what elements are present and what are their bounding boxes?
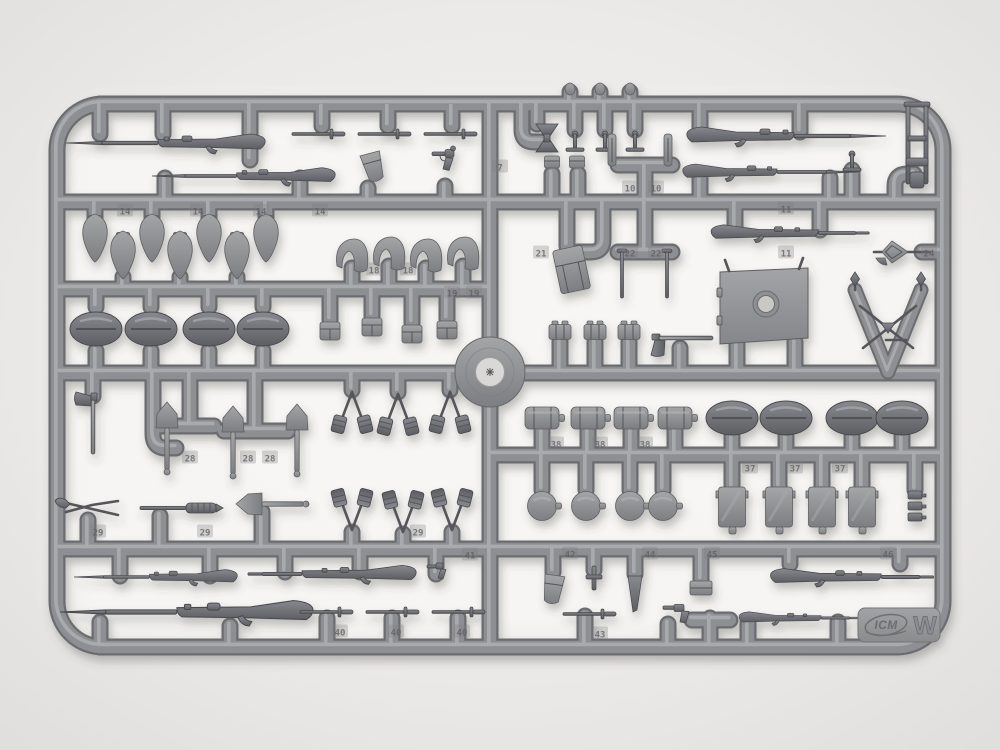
mold-number: 22: [651, 250, 662, 260]
mold-number: 19: [447, 290, 458, 300]
mess-tin-part: [525, 407, 565, 429]
mold-number: 37: [745, 465, 756, 475]
mold-number: 29: [413, 529, 424, 539]
mold-number: 10: [651, 185, 662, 195]
mold-number: 11: [781, 206, 792, 216]
mold-number: 24: [924, 250, 935, 260]
mold-number: 46: [883, 551, 894, 561]
mold-number: 40: [391, 629, 402, 639]
ammo-pouch-part: [437, 321, 457, 339]
mold-number: 41: [465, 552, 476, 562]
mold-number: 40: [335, 629, 346, 639]
mold-number: 38: [640, 441, 651, 451]
bread-bag-part: [716, 487, 748, 534]
mold-number: 28: [243, 455, 254, 465]
mold-number: 14: [315, 208, 326, 218]
icm-logo-text: ICM: [874, 618, 898, 632]
helmet-part: [706, 401, 758, 435]
ammo-pouch-part: [570, 156, 585, 168]
mold-number: 29: [93, 529, 104, 539]
ammo-pouch-part: [362, 318, 382, 336]
bread-bag-part: [763, 487, 795, 534]
sling-part: [608, 134, 616, 166]
ammo-pouch-part: [545, 156, 560, 168]
helmet-part: [237, 312, 289, 346]
mold-number: 18: [369, 267, 380, 277]
helmet-part: [125, 312, 177, 346]
mold-number: 42: [565, 551, 576, 561]
helmet-part: [876, 401, 928, 435]
helmet-part: [70, 312, 122, 346]
mold-number: 28: [265, 455, 276, 465]
mold-number: 38: [595, 441, 606, 451]
mold-number: 7: [497, 164, 502, 174]
mold-number: 14: [256, 208, 267, 218]
bread-bag-part: [846, 487, 878, 534]
mold-number: 14: [120, 208, 131, 218]
injection-boss: [455, 337, 525, 407]
mold-number: 18: [403, 267, 414, 277]
mess-tin-part: [658, 407, 698, 429]
box-part: [690, 581, 712, 595]
helmet-part: [826, 401, 878, 435]
ammo-pouch-part: [320, 322, 340, 340]
sprue-letter: W: [913, 612, 937, 640]
helmet-part: [183, 312, 235, 346]
mold-number: 37: [835, 465, 846, 475]
bread-bag-part: [806, 487, 838, 534]
mold-number: 44: [645, 551, 656, 561]
mold-number: 22: [625, 250, 636, 260]
sprue-photo: ICM W 1414141418181919710101111212222242…: [0, 0, 1000, 750]
mess-tin-part: [571, 407, 611, 429]
logo-tab: ICM W: [858, 608, 940, 642]
mold-number: 10: [625, 185, 636, 195]
mold-number: 14: [193, 208, 204, 218]
mold-number: 19: [469, 290, 480, 300]
mold-number: 45: [707, 551, 718, 561]
mold-number: 43: [595, 631, 606, 641]
stacked-boxes-part: [908, 491, 926, 521]
mess-tin-part: [614, 407, 654, 429]
mold-number: 40: [457, 629, 468, 639]
mold-number: 38: [551, 441, 562, 451]
sling-part: [664, 134, 672, 166]
ammo-pouch-part: [402, 325, 422, 343]
mold-number: 21: [536, 250, 547, 260]
photo-stage: ICM W 1414141418181919710101111212222242…: [0, 0, 1000, 750]
mold-number: 29: [200, 529, 211, 539]
mold-number: 28: [185, 455, 196, 465]
mold-number: 11: [781, 250, 792, 260]
helmet-part: [760, 401, 812, 435]
mold-number: 37: [790, 465, 801, 475]
